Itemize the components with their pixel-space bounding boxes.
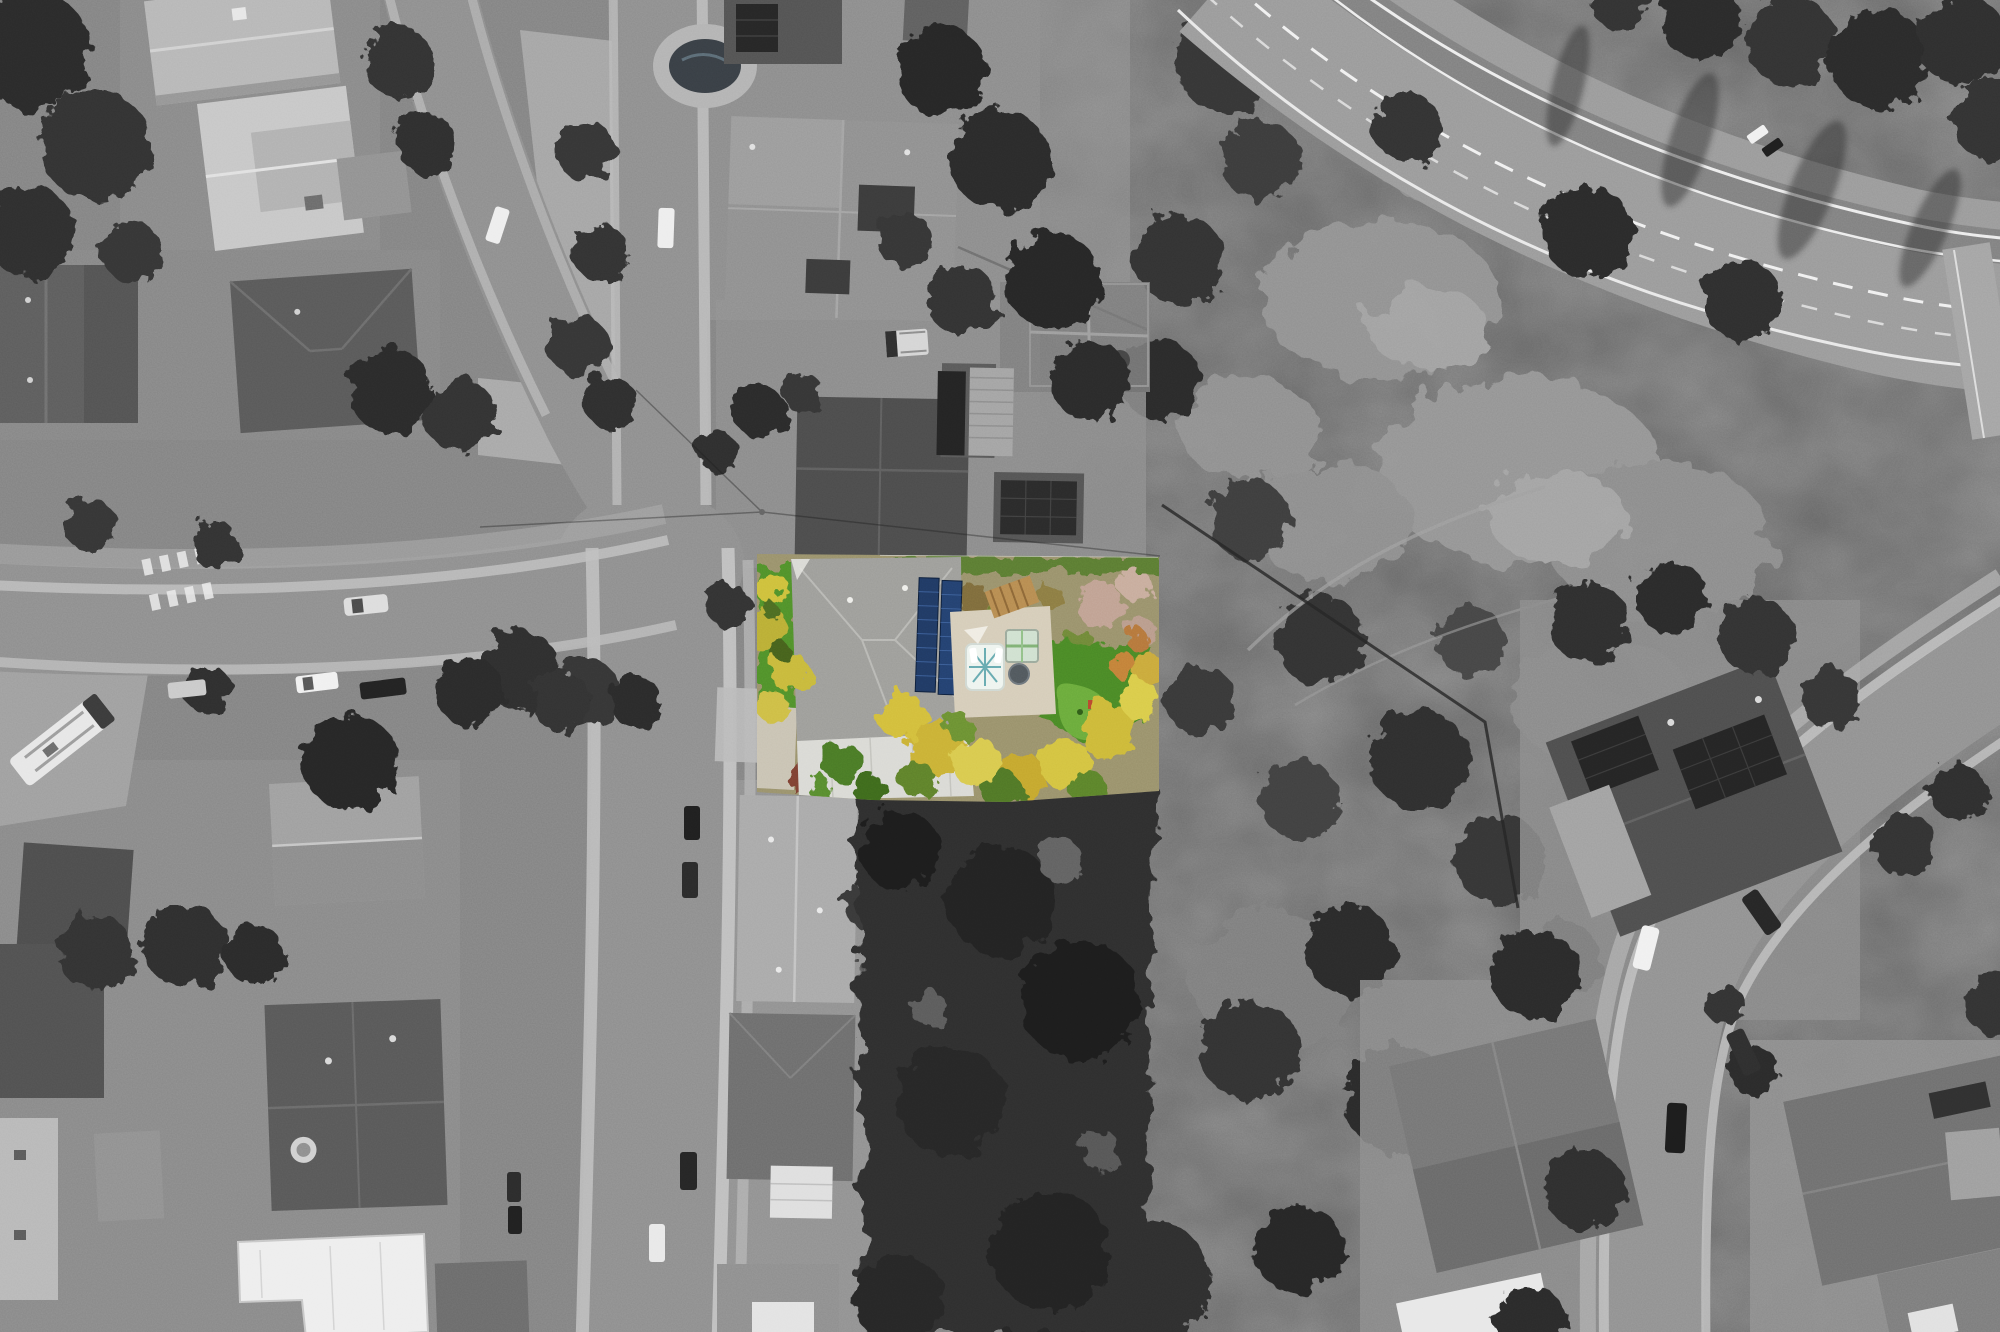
film-grain <box>0 0 2000 1332</box>
aerial-photo: aerial-drone-photograph <box>0 0 2000 1332</box>
aerial-photo-svg: aerial-drone-photograph <box>0 0 2000 1332</box>
